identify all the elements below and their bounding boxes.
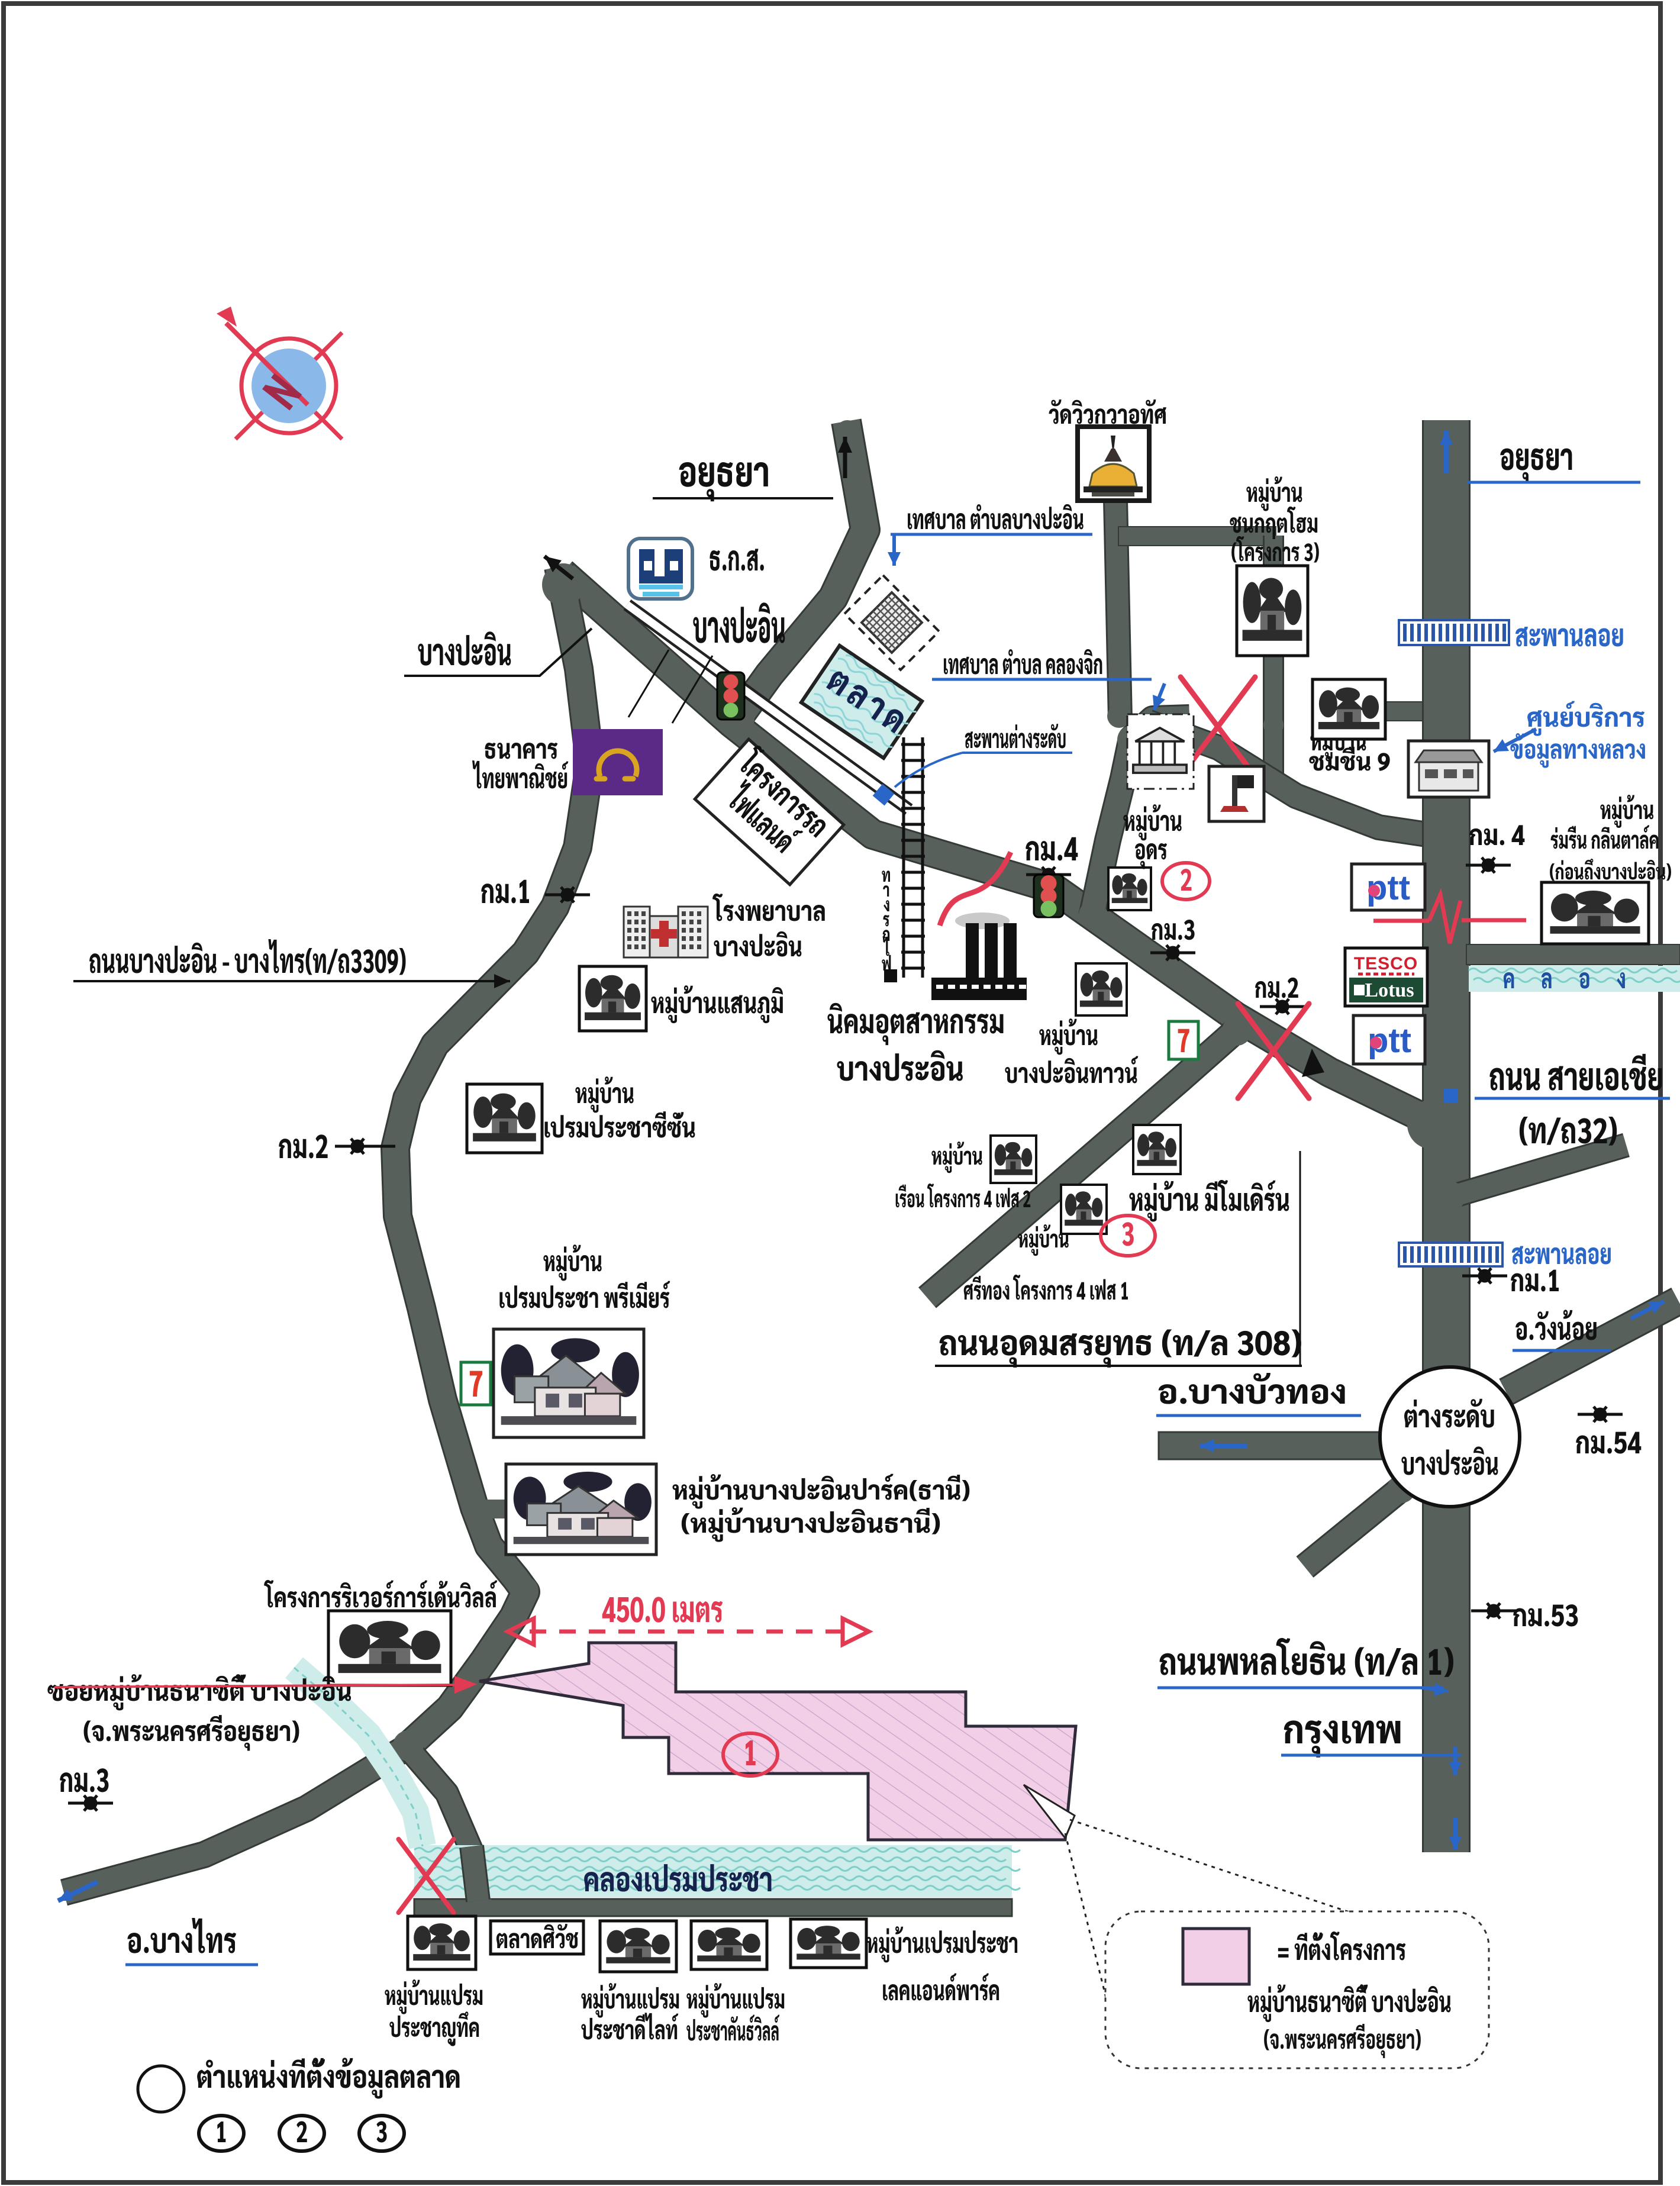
svg-text:TESCO: TESCO: [1354, 954, 1418, 973]
svg-text:Lotus: Lotus: [1365, 979, 1414, 1001]
